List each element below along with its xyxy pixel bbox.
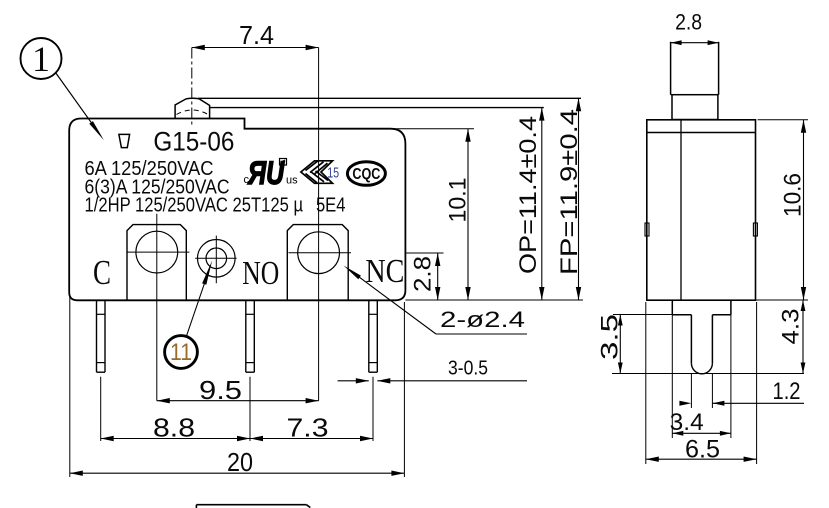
svg-text:FP=11.9±0.4: FP=11.9±0.4	[556, 109, 583, 275]
svg-text:C: C	[93, 253, 111, 292]
svg-text:2-ø2.4: 2-ø2.4	[440, 307, 525, 332]
svg-text:c: c	[244, 174, 250, 186]
svg-text:3.5: 3.5	[597, 314, 624, 360]
svg-text:2.8: 2.8	[410, 256, 437, 292]
svg-text:7.4: 7.4	[239, 20, 274, 50]
svg-text:NC: NC	[365, 253, 404, 290]
svg-text:CQC: CQC	[352, 166, 380, 183]
svg-text:1/2HP 125/250VAC 25T125 µ 5E4: 1/2HP 125/250VAC 25T125 µ 5E4	[85, 195, 346, 217]
svg-text:NO: NO	[242, 255, 279, 292]
svg-text:G15-06: G15-06	[153, 127, 234, 157]
svg-text:9.5: 9.5	[199, 375, 242, 405]
svg-text:6.5: 6.5	[685, 436, 720, 464]
svg-text:8.8: 8.8	[153, 413, 195, 443]
svg-text:3.4: 3.4	[670, 409, 704, 436]
svg-text:1.2: 1.2	[773, 378, 801, 405]
svg-text:2.8: 2.8	[675, 10, 702, 35]
svg-text:7.3: 7.3	[287, 413, 329, 443]
svg-text:4.3: 4.3	[778, 309, 805, 345]
svg-text:15: 15	[327, 166, 339, 182]
svg-text:3-0.5: 3-0.5	[448, 358, 488, 380]
svg-text:11: 11	[170, 339, 192, 366]
svg-text:10.1: 10.1	[445, 178, 472, 223]
svg-text:10.6: 10.6	[780, 173, 807, 217]
svg-text:OP=11.4±0.4: OP=11.4±0.4	[515, 116, 542, 274]
svg-text:us: us	[286, 175, 298, 187]
svg-text:1: 1	[32, 39, 50, 79]
svg-text:20: 20	[227, 447, 253, 477]
